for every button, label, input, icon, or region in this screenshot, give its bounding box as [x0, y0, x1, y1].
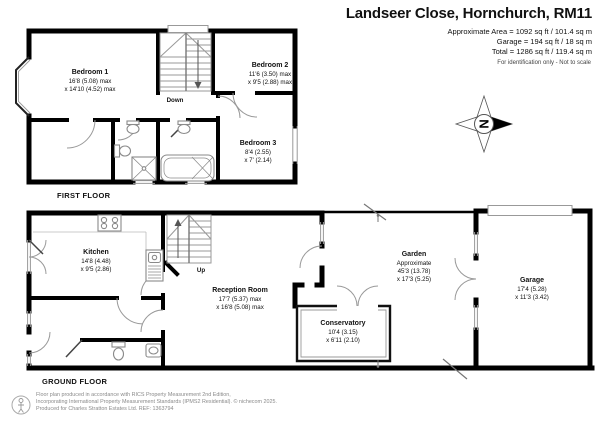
bay-window [16, 57, 30, 116]
stairs-down-label: Down [167, 97, 184, 104]
wc-fixtures [112, 342, 161, 360]
page-title: Landseer Close, Hornchurch, RM11 [346, 5, 592, 22]
room-label-bedroom-1: Bedroom 1 16'8 (5.08) max x 14'10 (4.52)… [64, 69, 115, 94]
area-summary: Approximate Area = 1092 sq ft / 101.4 sq… [448, 27, 592, 57]
approximate-area-line: Approximate Area = 1092 sq ft / 101.4 sq… [448, 27, 592, 37]
room-label-bedroom-3: Bedroom 3 8'4 (2.55) x 7' (2.14) [240, 140, 277, 165]
room-label-kitchen: Kitchen 14'8 (4.48) x 9'5 (2.86) [81, 249, 112, 274]
footer-line-1: Floor plan produced in accordance with R… [36, 392, 277, 399]
room-label-garage: Garage 17'4 (5.28) x 11'3 (3.42) [515, 277, 549, 302]
nichecom-logo-icon [10, 394, 32, 416]
room-label-garden: Garden Approximate 45'3 (13.78) x 17'3 (… [397, 251, 432, 284]
ground-floor-label: GROUND FLOOR [42, 377, 107, 386]
compass-rose: N [456, 96, 512, 152]
garden-gate-marks [364, 204, 467, 379]
footer-line-2: Incorporating International Property Mea… [36, 399, 277, 406]
ground-floor-stairs [167, 215, 211, 263]
disclaimer-text: For identification only - Not to scale [497, 60, 591, 66]
first-floor-label: FIRST FLOOR [57, 191, 110, 200]
footer-line-3: Produced for Charles Stratton Estates Lt… [36, 406, 277, 413]
room-label-bedroom-2: Bedroom 2 11'6 (3.50) max x 9'5 (2.88) m… [248, 62, 292, 87]
garage-door [488, 206, 572, 216]
first-floor-stairs [160, 33, 211, 91]
room-label-conservatory: Conservatory 10'4 (3.15) x 6'11 (2.10) [320, 320, 365, 345]
floorplan-page: N Landseer Close, Hornchurch, RM11 Appro… [0, 0, 600, 424]
stairs-up-label: Up [197, 267, 205, 274]
hob [98, 215, 121, 231]
header: Landseer Close, Hornchurch, RM11 [346, 5, 592, 22]
garage-area-line: Garage = 194 sq ft / 18 sq m [448, 37, 592, 47]
compass-north-pointer [491, 117, 512, 131]
bathroom-fixtures [115, 121, 215, 181]
total-area-line: Total = 1286 sq ft / 119.4 sq m [448, 47, 592, 57]
room-label-reception-room: Reception Room 17'7 (5.37) max x 16'8 (5… [212, 287, 268, 312]
compass-north-letter: N [477, 119, 492, 128]
footer-disclaimer: Floor plan produced in accordance with R… [36, 392, 277, 413]
